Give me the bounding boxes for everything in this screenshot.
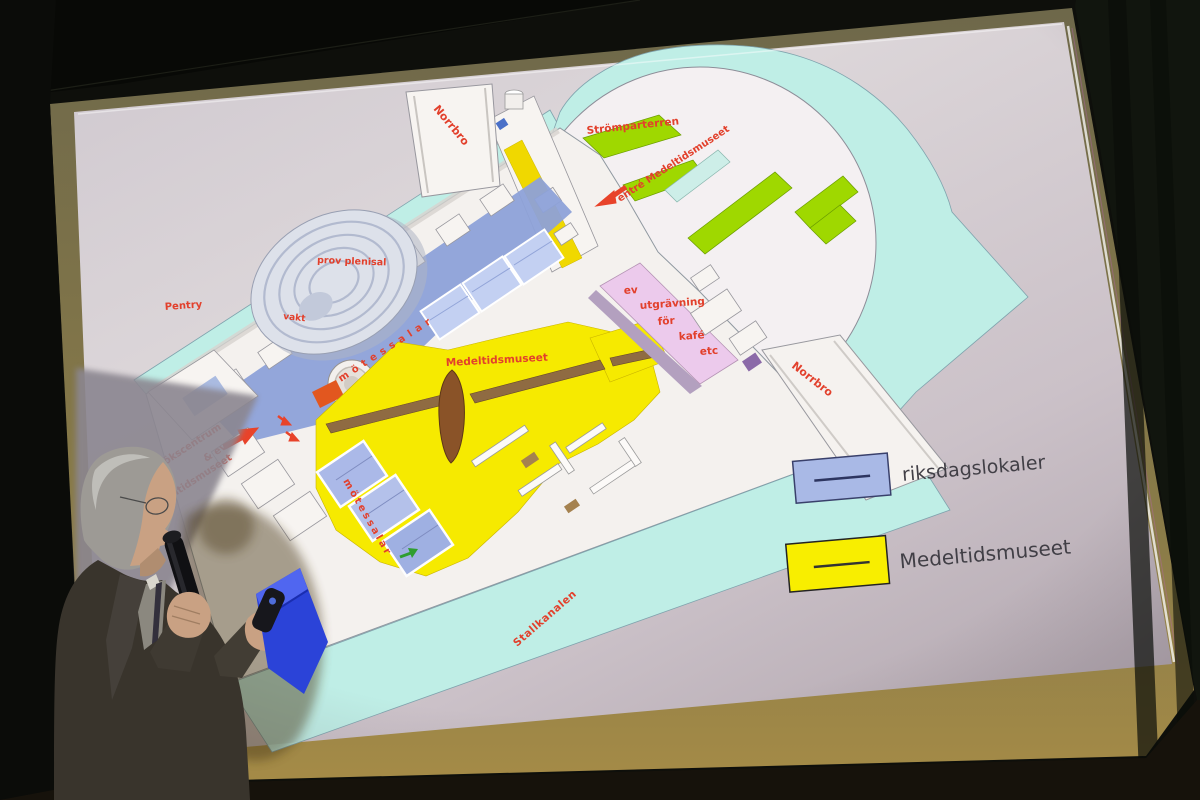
photo-of-presentation: Norrbro Strömparterren entré Medeltidsmu… xyxy=(0,0,1200,800)
presenter-head-shadow xyxy=(198,498,254,554)
right-hand xyxy=(167,592,211,638)
scene: Norrbro Strömparterren entré Medeltidsmu… xyxy=(0,0,1200,800)
